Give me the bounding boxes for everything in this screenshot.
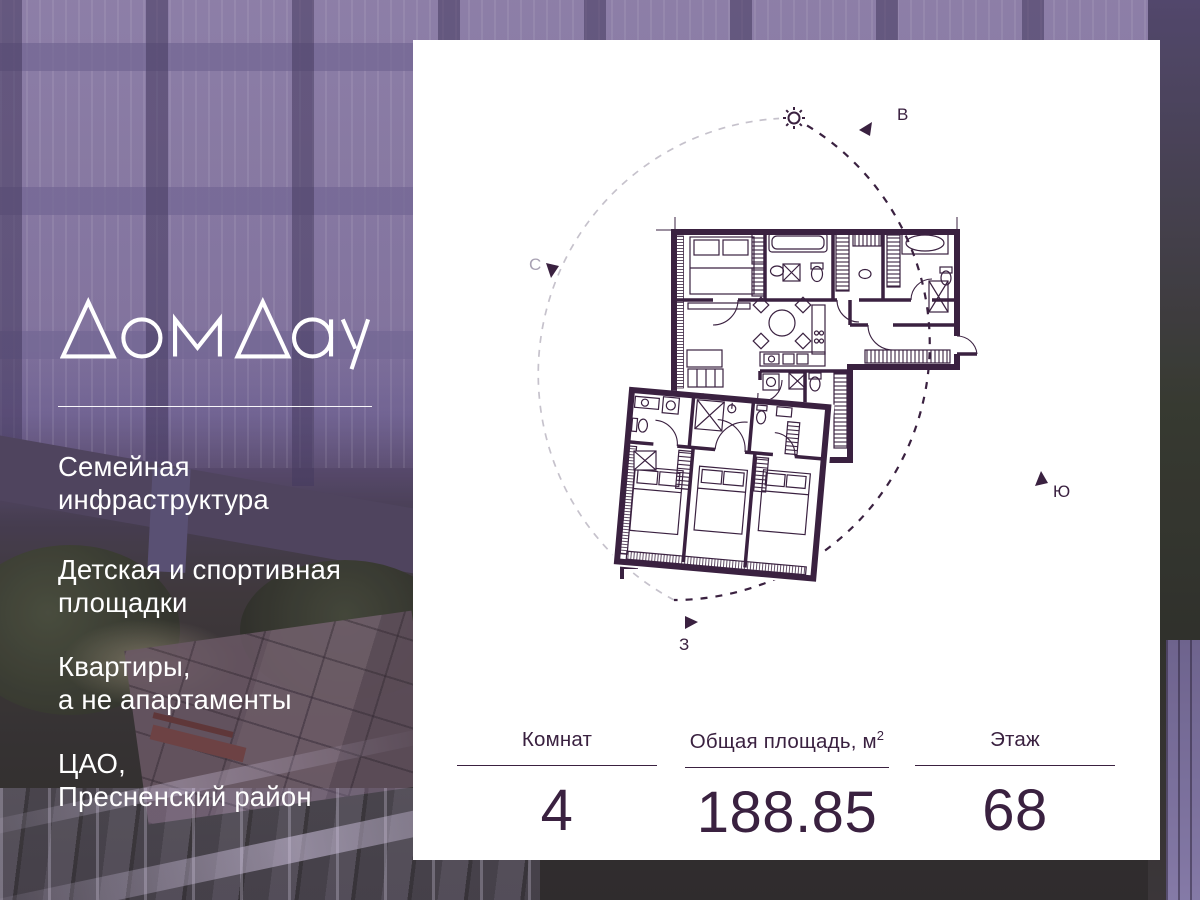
stat-floor-value: 68 [915,777,1115,844]
selling-point: Семейная инфраструктура [58,450,269,516]
logo-text: ДомДау [0,0,1,1]
stat-rooms: Комнат 4 [457,728,657,844]
domdau-logo [60,296,372,374]
plan-shaft [634,451,656,470]
stat-area-value: 188.85 [685,779,889,846]
selling-point-line: а не апартаменты [58,683,292,716]
stat-rooms-label: Комнат [457,728,657,766]
compass-east-label: В [897,105,908,124]
stat-area-label-sup: 2 [877,728,884,743]
compass-west-label: З [679,635,689,654]
stat-floor-label: Этаж [915,728,1115,766]
selling-point-line: Семейная [58,450,269,483]
selling-point-line: Пресненский район [58,780,312,813]
stat-floor: Этаж 68 [915,728,1115,844]
promo-card-page: ДомДау Семейная инфраструктура Детская и… [0,0,1200,900]
selling-point: ЦАО, Пресненский район [58,747,312,813]
selling-point: Квартиры, а не апартаменты [58,650,292,716]
selling-point-line: инфраструктура [58,483,269,516]
stat-area-label: Общая площадь, м2 [685,728,889,768]
compass-north-label: С [529,255,541,274]
stat-area-label-text: Общая площадь, м [690,730,877,753]
plan-lower-block [612,387,835,584]
compass-east-arrow [859,122,872,136]
compass-south-arrow [1035,471,1048,486]
floor-plan: В С Ю З [413,40,1160,720]
logo-divider [58,406,372,407]
stat-rooms-value: 4 [457,777,657,844]
compass-west-arrow [685,616,698,629]
selling-point-line: площадки [58,586,341,619]
selling-point-line: Квартиры, [58,650,292,683]
compass-south-label: Ю [1053,482,1070,501]
selling-point-line: ЦАО, [58,747,312,780]
apartment-card: В С Ю З [413,40,1160,860]
compass-north-arrow [546,263,559,278]
selling-point: Детская и спортивная площадки [58,553,341,619]
stat-area: Общая площадь, м2 188.85 [685,728,889,846]
plan-corner-mark [622,567,638,579]
selling-point-line: Детская и спортивная [58,553,341,586]
left-panel: ДомДау Семейная инфраструктура Детская и… [0,0,413,900]
